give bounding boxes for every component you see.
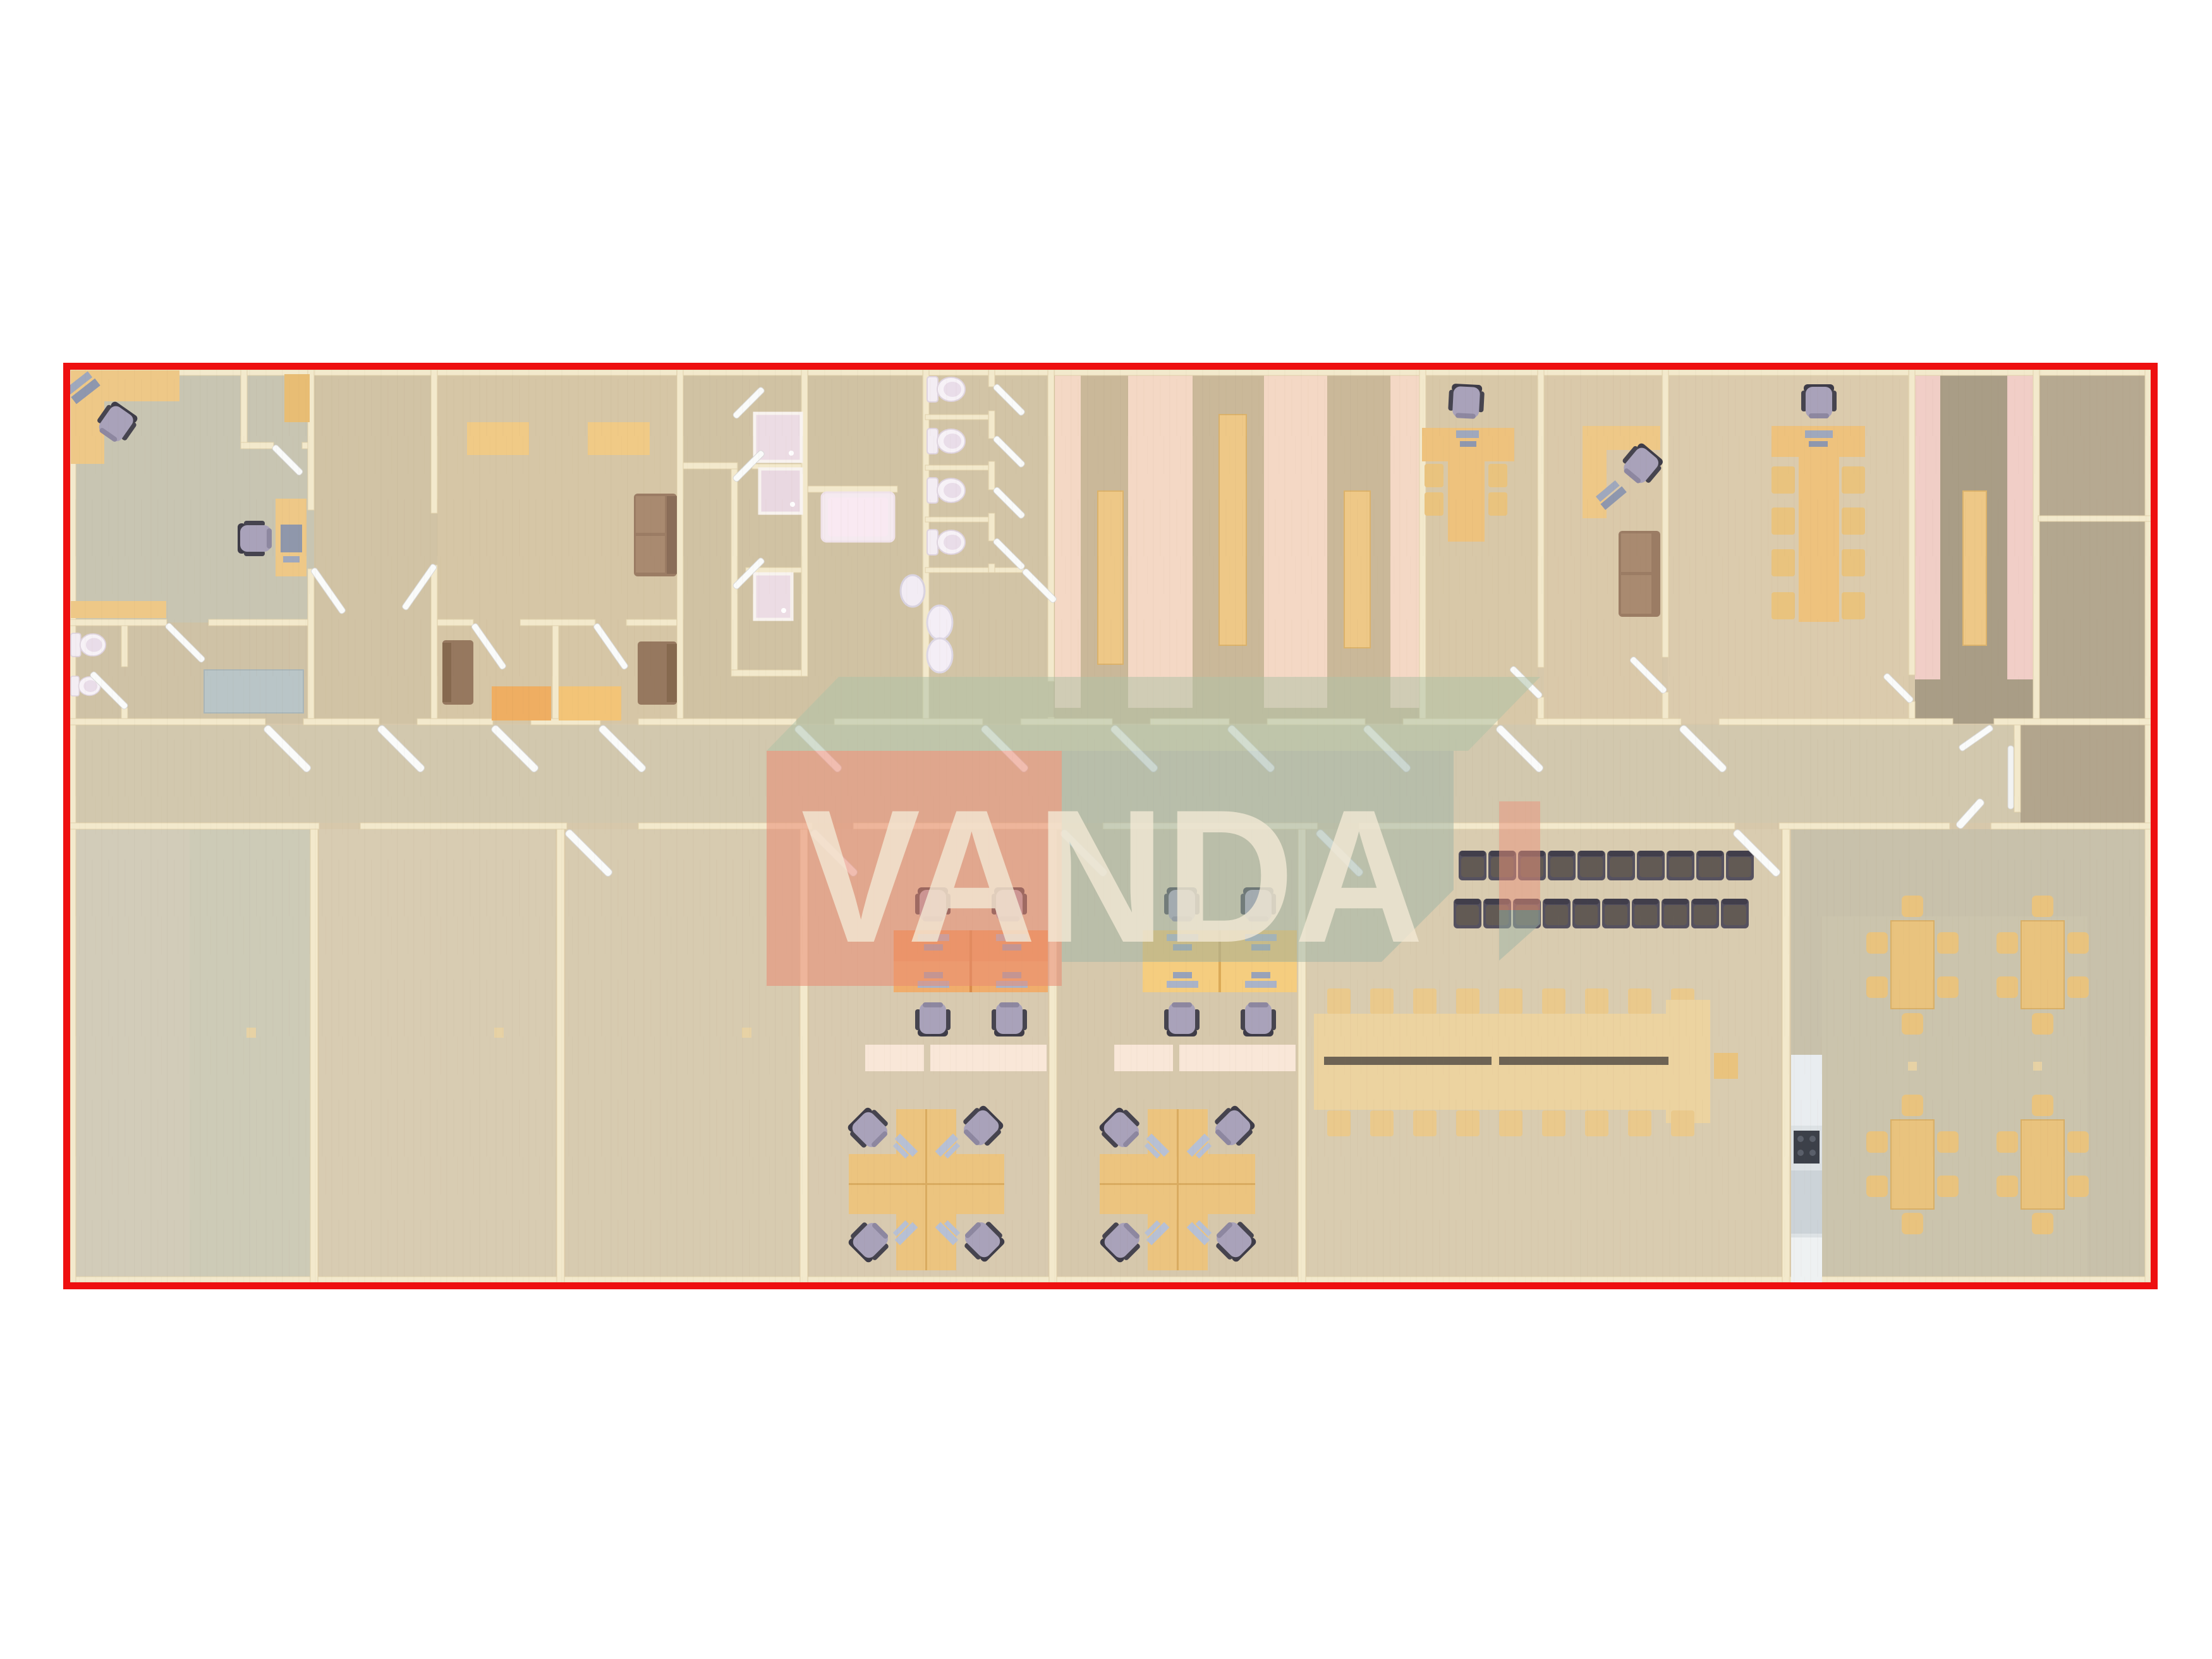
svg-text:VANDA: VANDA [801,770,1424,982]
